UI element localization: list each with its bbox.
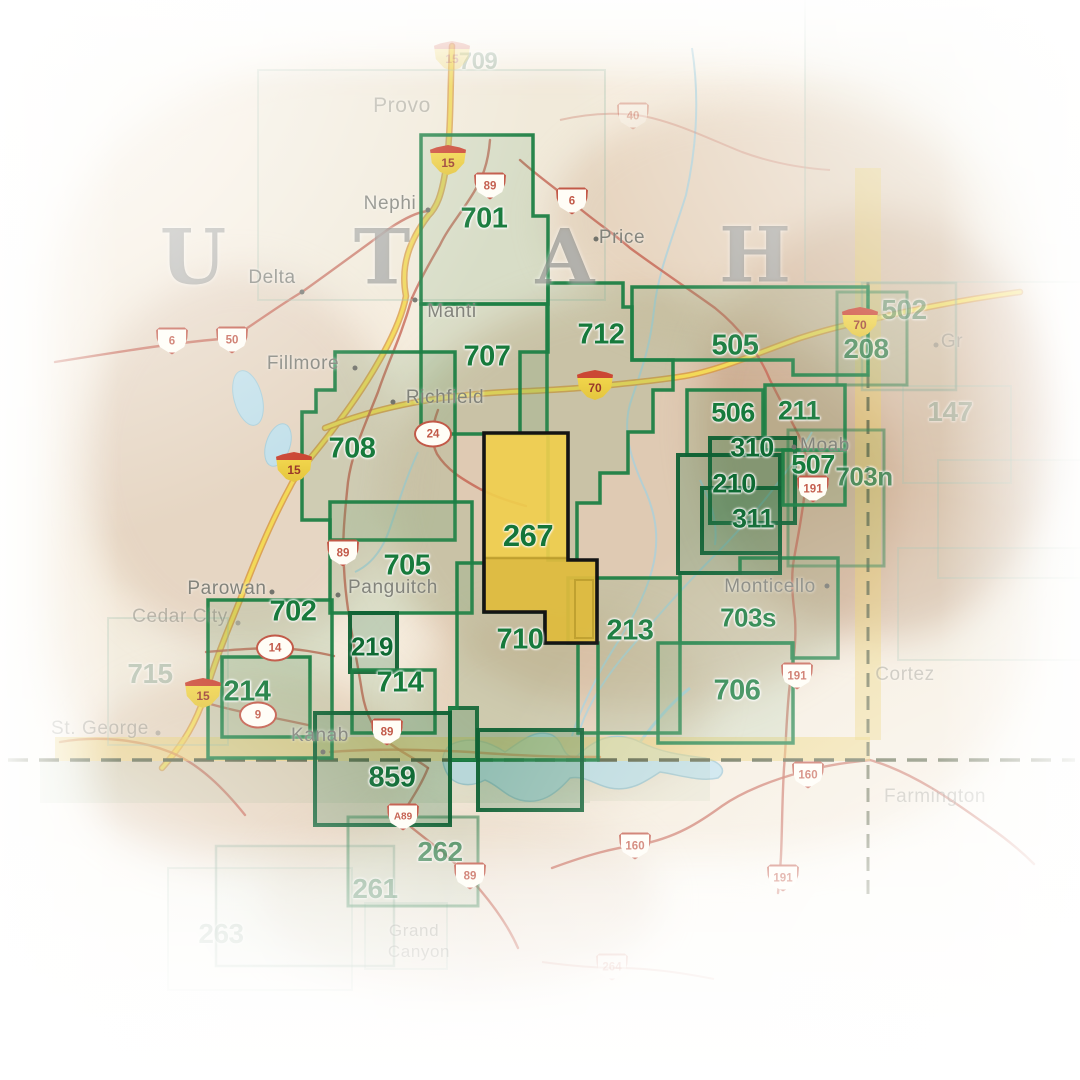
city-dot-price <box>594 237 599 242</box>
city-dot-cedar-city <box>236 621 241 626</box>
shield-number: A89 <box>394 812 412 823</box>
city-label-kanab: Kanab <box>291 725 349 747</box>
region-label-706: 706 <box>714 675 761 708</box>
shield-number: 89 <box>464 870 477 882</box>
region-label-505: 505 <box>712 330 759 363</box>
region-label-712: 712 <box>578 319 625 352</box>
shield-number: 89 <box>381 726 394 738</box>
city-label-provo: Provo <box>373 94 431 118</box>
region-label-211: 211 <box>778 396 820 427</box>
city-dot-monticello <box>825 584 830 589</box>
shield-number: 160 <box>798 769 817 781</box>
city-label-panguitch: Panguitch <box>348 577 438 599</box>
city-dot-panguitch <box>336 593 341 598</box>
region-label-703n: 703n <box>835 462 892 493</box>
city-label-delta: Delta <box>248 267 295 289</box>
us-route-shield-89: 89 <box>474 173 506 200</box>
us-route-shield-89: 89 <box>454 863 486 890</box>
city-dot-gr <box>934 343 939 348</box>
city-label-nephi: Nephi <box>364 193 417 215</box>
shield-number: 191 <box>787 670 806 682</box>
region-label-703s: 703s <box>720 603 776 634</box>
map-labels-layer: 709715147263502261262208703n505701707708… <box>0 0 1080 1080</box>
city-dot-kanab <box>321 750 326 755</box>
region-label-208: 208 <box>843 333 888 365</box>
city-label-st-george: St. George <box>51 718 149 740</box>
city-label-cedar-city: Cedar City <box>132 606 228 628</box>
region-label-506: 506 <box>711 398 755 429</box>
interstate-shield-70: 70 <box>577 370 613 400</box>
state-name-letter-A: A <box>536 213 595 302</box>
city-dot-richfield <box>391 400 396 405</box>
region-label-702: 702 <box>270 596 317 629</box>
city-dot-nephi <box>426 208 431 213</box>
shield-number: 15 <box>287 463 300 477</box>
state-route-shield-9: 9 <box>239 702 277 729</box>
shield-number: 89 <box>484 180 497 192</box>
shield-number: 6 <box>169 335 175 347</box>
shield-number: 70 <box>853 318 866 332</box>
state-route-shield-14: 14 <box>256 635 294 662</box>
shield-number: 14 <box>269 642 282 654</box>
shield-number: 15 <box>196 689 209 703</box>
city-label-grand: Grand <box>389 921 439 941</box>
region-label-261: 261 <box>352 873 397 905</box>
shield-number: 50 <box>226 334 239 346</box>
city-label-price: Price <box>599 227 645 249</box>
region-label-263: 263 <box>198 918 243 950</box>
city-label-manti: Manti <box>427 301 476 323</box>
shield-number: 9 <box>255 709 261 721</box>
shield-number: 89 <box>337 547 350 559</box>
city-label-cortez: Cortez <box>875 664 935 686</box>
region-label-311: 311 <box>732 504 774 535</box>
interstate-shield-15: 15 <box>430 145 466 175</box>
region-label-267: 267 <box>503 518 553 554</box>
region-label-708: 708 <box>329 433 376 466</box>
city-dot-fillmore <box>353 366 358 371</box>
us-route-shield-40: 40 <box>617 103 649 130</box>
us-route-shield-160: 160 <box>619 833 651 860</box>
region-label-710: 710 <box>497 624 544 657</box>
us-route-shield-50: 50 <box>216 327 248 354</box>
city-dot-st-george <box>156 731 161 736</box>
city-dot-delta <box>300 290 305 295</box>
region-label-210: 210 <box>712 469 756 500</box>
interstate-shield-15: 15 <box>276 452 312 482</box>
region-label-859-west: 859 <box>369 762 416 795</box>
region-label-310: 310 <box>730 433 774 464</box>
shield-number: 191 <box>803 483 822 495</box>
shield-number: 15 <box>441 156 454 170</box>
us-route-shield-A89: A89 <box>387 804 419 831</box>
region-label-262: 262 <box>417 836 462 868</box>
region-label-715: 715 <box>127 658 172 690</box>
region-label-707: 707 <box>464 341 511 374</box>
city-label-canyon: Canyon <box>388 942 450 962</box>
region-label-714: 714 <box>377 667 424 700</box>
region-label-219: 219 <box>351 632 393 663</box>
state-route-shield-24: 24 <box>414 421 452 448</box>
us-route-shield-160: 160 <box>792 762 824 789</box>
city-dot-parowan <box>270 590 275 595</box>
city-label-fillmore: Fillmore <box>267 353 339 375</box>
city-label-richfield: Richfield <box>406 387 484 409</box>
shield-number: 70 <box>588 381 601 395</box>
city-label-farmington: Farmington <box>884 786 986 808</box>
city-label-gr: Gr <box>941 331 963 353</box>
us-route-shield-6: 6 <box>556 188 588 215</box>
shield-number: 6 <box>569 195 575 207</box>
city-label-parowan: Parowan <box>187 578 266 600</box>
region-label-701: 701 <box>461 203 508 236</box>
us-route-shield-6: 6 <box>156 328 188 355</box>
region-label-502: 502 <box>881 294 926 326</box>
shield-number: 264 <box>602 961 621 973</box>
us-route-shield-191: 191 <box>767 865 799 892</box>
city-dot-manti <box>413 298 418 303</box>
us-route-shield-191: 191 <box>797 476 829 503</box>
city-label-moab: Moab <box>800 435 850 457</box>
state-name-letter-U: U <box>160 213 226 302</box>
shield-number: 24 <box>427 428 440 440</box>
city-label-monticello: Monticello <box>724 576 816 598</box>
us-route-shield-89: 89 <box>371 719 403 746</box>
utah-map-index: 709715147263502261262208703n505701707708… <box>0 0 1080 1080</box>
city-dot-moab <box>792 445 797 450</box>
shield-number: 15 <box>445 52 458 66</box>
shield-number: 191 <box>773 872 792 884</box>
shield-number: 160 <box>625 840 644 852</box>
state-name-letter-T: T <box>354 213 411 302</box>
region-label-213: 213 <box>607 615 654 648</box>
state-name-letter-H: H <box>719 211 791 300</box>
region-label-147: 147 <box>927 396 972 428</box>
interstate-shield-15: 15 <box>185 678 221 708</box>
us-route-shield-191: 191 <box>781 663 813 690</box>
shield-number: 40 <box>627 110 640 122</box>
us-route-shield-264: 264 <box>596 954 628 981</box>
us-route-shield-89: 89 <box>327 540 359 567</box>
